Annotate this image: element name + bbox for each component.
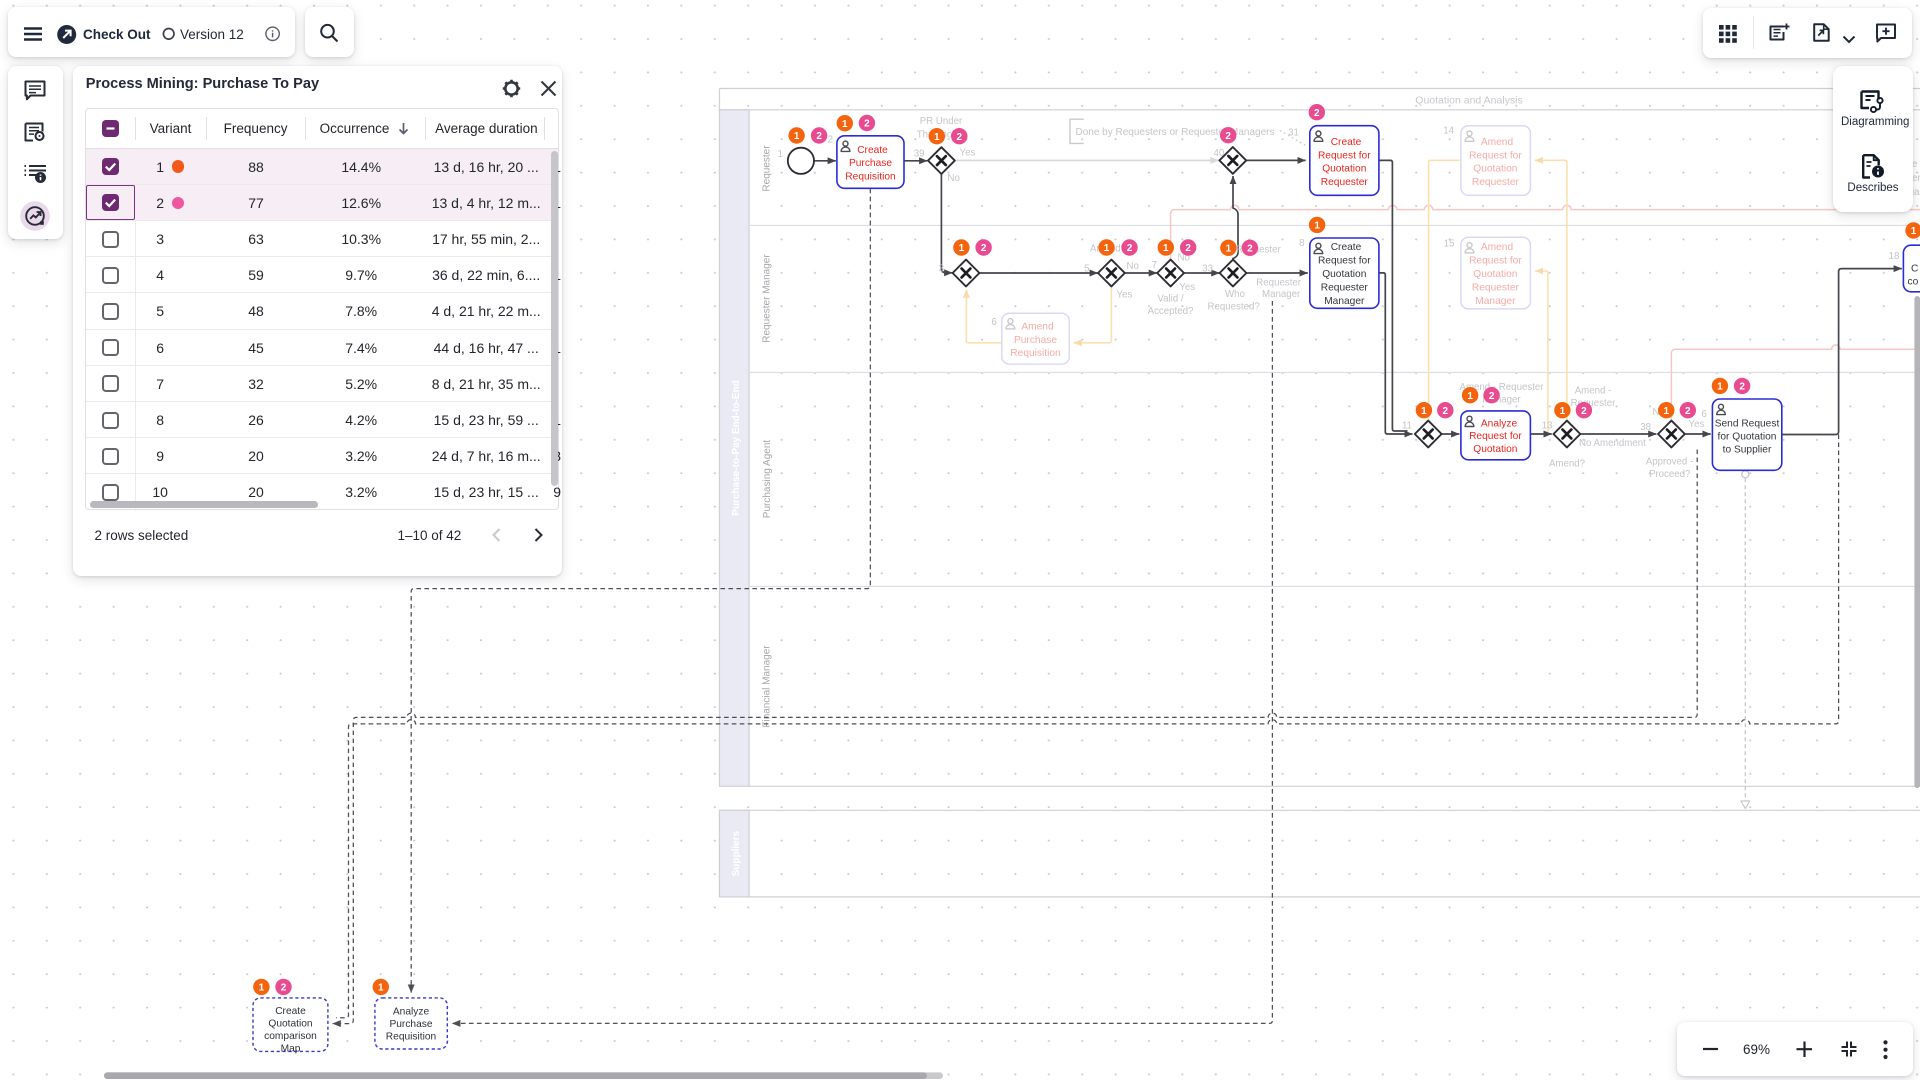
svg-text:Quotation and Analysis: Quotation and Analysis [1415, 95, 1522, 107]
svg-text:Yes: Yes [1117, 290, 1133, 301]
svg-text:Purchase: Purchase [389, 1019, 432, 1030]
svg-text:Quotation: Quotation [1473, 164, 1517, 175]
svg-text:Requester: Requester [1321, 282, 1369, 293]
svg-text:Manager: Manager [1324, 296, 1365, 307]
svg-text:13: 13 [1542, 421, 1553, 432]
svg-text:Quotation: Quotation [1322, 164, 1366, 175]
svg-text:Create: Create [1331, 137, 1362, 148]
svg-text:Who: Who [1225, 289, 1245, 300]
svg-text:ia: ia [1912, 187, 1920, 198]
svg-text:5: 5 [1084, 264, 1089, 275]
svg-text:Quotation: Quotation [268, 1019, 312, 1030]
svg-text:Request for: Request for [1469, 256, 1522, 267]
svg-text:Map: Map [281, 1044, 301, 1055]
svg-text:Request for: Request for [1318, 150, 1371, 161]
svg-text:e: e [1912, 159, 1917, 170]
svg-text:Requested?: Requested? [1207, 301, 1260, 312]
svg-text:14: 14 [1443, 126, 1454, 137]
svg-text:Manager: Manager [1262, 289, 1301, 300]
svg-text:3: 3 [939, 264, 944, 275]
svg-text:Requester Manager: Requester Manager [762, 254, 773, 343]
svg-text:Proceed?: Proceed? [1649, 469, 1691, 480]
svg-text:No: No [948, 173, 960, 184]
svg-text:18: 18 [1889, 251, 1900, 262]
svg-text:Amend: Amend [1481, 242, 1514, 253]
svg-text:Analyze: Analyze [1481, 418, 1518, 429]
svg-text:Yes: Yes [1179, 282, 1195, 293]
svg-text:PR Under: PR Under [920, 116, 963, 127]
svg-text:for Quotation: for Quotation [1718, 431, 1777, 442]
svg-text:co: co [1908, 277, 1919, 288]
svg-text:Amend: Amend [1481, 137, 1514, 148]
svg-text:Purchase: Purchase [849, 158, 892, 169]
svg-text:Request for: Request for [1469, 150, 1522, 161]
svg-text:Financial Manager: Financial Manager [762, 645, 773, 728]
svg-text:31: 31 [1288, 128, 1299, 139]
svg-text:Create: Create [857, 145, 888, 156]
svg-text:Requester: Requester [762, 145, 773, 192]
svg-text:7: 7 [1152, 260, 1157, 271]
svg-text:11: 11 [1402, 421, 1412, 432]
svg-text:Requisition: Requisition [1010, 348, 1060, 359]
svg-text:No Amendment: No Amendment [1579, 438, 1646, 449]
svg-text:Create: Create [275, 1006, 306, 1017]
svg-text:en: en [1912, 173, 1920, 184]
svg-text:Amend -: Amend - [1575, 386, 1612, 397]
svg-text:Approved -: Approved - [1646, 456, 1693, 467]
svg-text:38: 38 [1640, 422, 1651, 433]
svg-text:Requester: Requester [1256, 277, 1301, 288]
svg-text:1: 1 [778, 149, 783, 160]
svg-text:Purchase: Purchase [1014, 335, 1057, 346]
svg-text:Create: Create [1331, 242, 1362, 253]
svg-text:Requester: Requester [1472, 177, 1520, 188]
svg-text:Requester: Requester [1321, 177, 1369, 188]
svg-text:15: 15 [1444, 239, 1455, 250]
svg-text:Send Request: Send Request [1715, 419, 1780, 430]
svg-text:Request for: Request for [1469, 431, 1522, 442]
svg-text:Yes: Yes [1689, 419, 1705, 430]
svg-text:Quotation: Quotation [1473, 269, 1517, 280]
svg-text:Quotation: Quotation [1473, 444, 1517, 455]
svg-text:Analyze: Analyze [393, 1006, 430, 1017]
svg-text:Done by Requesters or Requeste: Done by Requesters or Requester Managers [1076, 127, 1275, 138]
svg-text:to Supplier: to Supplier [1723, 444, 1772, 455]
svg-text:Requisition: Requisition [386, 1031, 436, 1042]
svg-text:Amend: Amend [1021, 321, 1054, 332]
svg-text:Manager: Manager [1475, 296, 1516, 307]
svg-text:No: No [1127, 261, 1139, 272]
svg-text:Request for: Request for [1318, 256, 1371, 267]
svg-text:Requisition: Requisition [845, 172, 895, 183]
svg-text:Purchase-to-Pay End-to-End: Purchase-to-Pay End-to-End [731, 380, 742, 516]
svg-text:Quotation: Quotation [1322, 269, 1366, 280]
svg-text:2: 2 [828, 135, 833, 146]
svg-text:39: 39 [914, 149, 925, 160]
svg-text:Requester: Requester [1472, 282, 1520, 293]
svg-text:Accepted?: Accepted? [1148, 306, 1194, 317]
svg-text:Valid /: Valid / [1157, 294, 1184, 305]
svg-text:Purchasing Agent: Purchasing Agent [762, 440, 773, 519]
svg-text:C: C [1911, 264, 1918, 275]
svg-text:Amend?: Amend? [1549, 459, 1586, 470]
svg-text:Suppliers: Suppliers [731, 830, 742, 876]
svg-text:8: 8 [1299, 238, 1304, 249]
svg-text:comparison: comparison [264, 1031, 317, 1042]
svg-text:6: 6 [1702, 409, 1707, 420]
svg-text:40: 40 [1214, 148, 1225, 159]
svg-text:6: 6 [991, 317, 996, 328]
svg-text:33: 33 [1202, 264, 1213, 275]
svg-text:Yes: Yes [960, 148, 976, 159]
